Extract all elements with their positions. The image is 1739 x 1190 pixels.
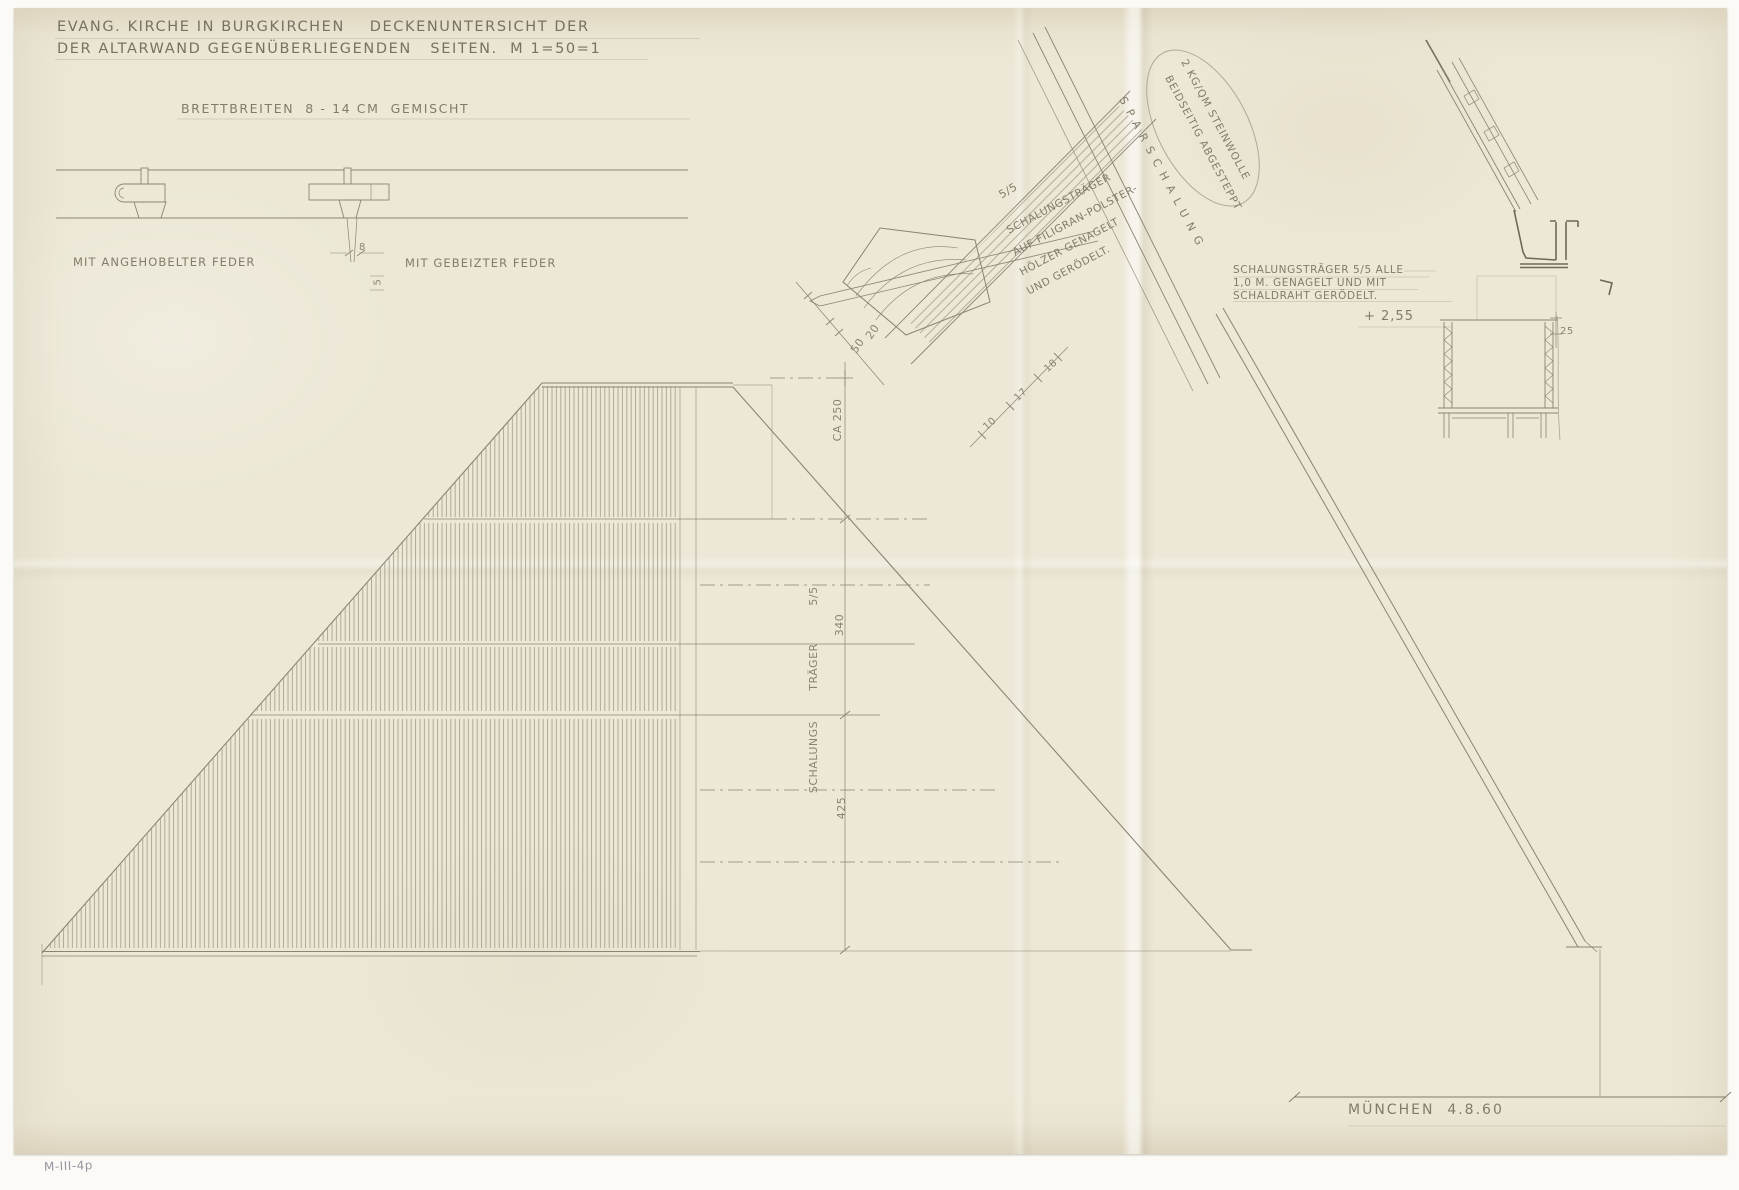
plan-dim-425: 425 <box>836 797 848 820</box>
place-date: MÜNCHEN 4.8.60 <box>1348 1103 1504 1118</box>
eaves-dim-25: 25 <box>1560 326 1574 337</box>
hatch-band-top <box>425 386 676 517</box>
hatch-band-bottom <box>47 719 676 948</box>
hatch-band-mid2 <box>254 647 676 711</box>
apex-dim-ca250: CA 250 <box>832 399 844 442</box>
board-profile-detail <box>56 168 688 290</box>
gutter-profile <box>1514 210 1612 295</box>
profile-depth-dim: 5 <box>373 279 384 286</box>
traeger-centerlines <box>700 378 1060 862</box>
drawing-linework <box>0 0 1739 1190</box>
right-note-line1: SCHALUNGSTRÄGER 5/5 ALLE <box>1233 265 1404 277</box>
plan-col-label-55: 5/5 <box>808 586 820 605</box>
ceiling-plan <box>42 282 1252 985</box>
footer-dimension <box>1289 1092 1731 1102</box>
boards-note: BRETTBREITEN 8 - 14 CM GEMISCHT <box>181 102 469 116</box>
profile-right-label: MIT GEBEIZTER FEDER <box>405 257 556 270</box>
elevation-diagonal <box>1216 308 1602 1096</box>
profile-width-dim: 8 <box>359 242 366 253</box>
sheet-title-line2: DER ALTARWAND GEGENÜBERLIEGENDEN SEITEN.… <box>57 42 601 58</box>
hatch-band-mid <box>316 523 676 641</box>
plan-dim-340: 340 <box>834 614 846 637</box>
plan-col-label-schalungs: SCHALUNGS <box>808 721 820 793</box>
lettering-guides <box>55 39 1726 1127</box>
right-note-line3: SCHALDRAHT GERÖDELT. <box>1233 291 1378 303</box>
eaves-section <box>1426 40 1612 440</box>
scanned-drawing-sheet: EVANG. KIRCHE IN BURGKIRCHEN DECKENUNTER… <box>0 0 1739 1190</box>
plan-col-label-traeger: TRÄGER <box>808 643 820 690</box>
profile-left-label: MIT ANGEHOBELTER FEDER <box>73 256 255 269</box>
sheet-title-line1: EVANG. KIRCHE IN BURGKIRCHEN DECKENUNTER… <box>57 20 590 36</box>
level-mark: + 2,55 <box>1364 310 1414 324</box>
right-note-line2: 1,0 M. GENAGELT UND MIT <box>1233 278 1387 290</box>
archive-mark: M-III-4p <box>44 1159 93 1174</box>
